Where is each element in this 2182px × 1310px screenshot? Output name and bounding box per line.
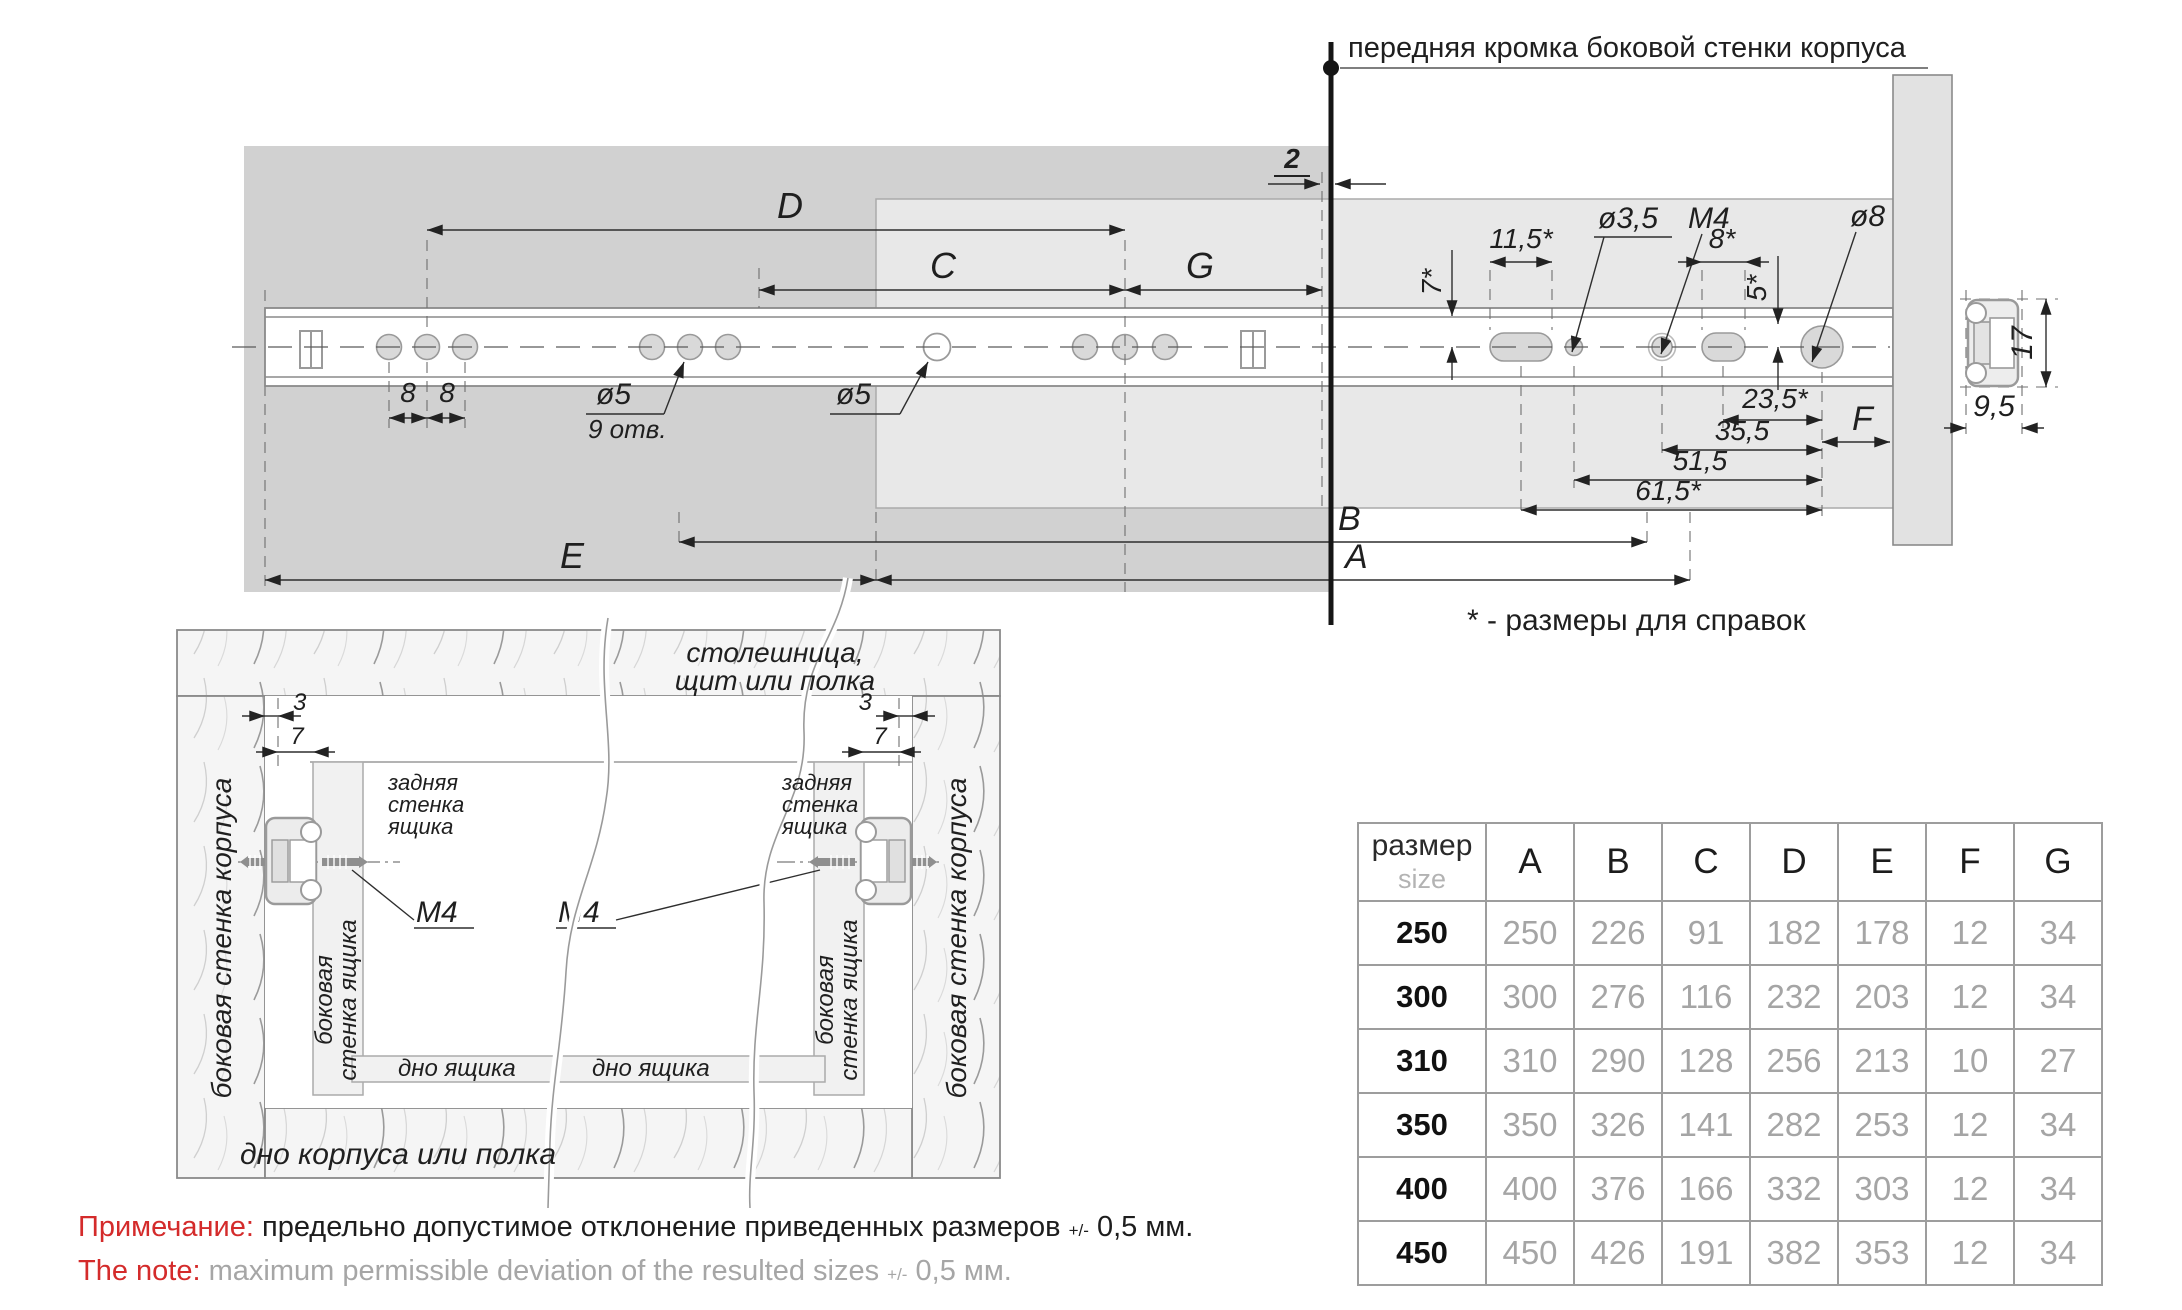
section-width-label: 9,5 <box>1973 390 2015 423</box>
table-header-c: C <box>1662 823 1750 901</box>
note-en-tolerance: +/- <box>887 1265 907 1284</box>
size-header-ru: размер <box>1360 829 1484 864</box>
dim-label-615: 61,5* <box>1635 475 1701 506</box>
table-cell: 213 <box>1838 1029 1926 1093</box>
note-ru-label: Примечание: <box>78 1211 254 1243</box>
drawer-bottom-label-left: дно ящика <box>398 1055 516 1082</box>
note-en-label: The note: <box>78 1255 201 1287</box>
size-table: размер size A B C D E F G 250 250 226 91… <box>1357 822 2103 1286</box>
table-header-d: D <box>1750 823 1838 901</box>
dim-7-left: 7 <box>290 723 305 750</box>
table-cell: 226 <box>1574 901 1662 965</box>
table-cell: 12 <box>1926 901 2014 965</box>
svg-text:стенка ящика: стенка ящика <box>836 919 863 1080</box>
section-height-label: 17 <box>2006 325 2039 360</box>
table-cell: 91 <box>1662 901 1750 965</box>
table-cell: 34 <box>2014 1221 2102 1285</box>
cross-section: 17 9,5 <box>1944 290 2058 442</box>
table-cell: 353 <box>1838 1221 1926 1285</box>
technical-drawing-page: E A B <box>0 0 2182 1305</box>
table-row: 350 350 326 141 282 253 12 34 <box>1358 1093 2102 1157</box>
note-ru-value: 0,5 мм. <box>1097 1211 1193 1243</box>
table-header-b: B <box>1574 823 1662 901</box>
table-cell: 332 <box>1750 1157 1838 1221</box>
table-row: 250 250 226 91 182 178 12 34 <box>1358 901 2102 965</box>
svg-text:ящика: ящика <box>781 814 847 839</box>
table-cell: 250 <box>1486 901 1574 965</box>
table-cell: 290 <box>1574 1029 1662 1093</box>
table-cell: 426 <box>1574 1221 1662 1285</box>
table-cell-size: 310 <box>1358 1029 1486 1093</box>
table-cell-size: 450 <box>1358 1221 1486 1285</box>
dim-label-e: E <box>560 535 585 576</box>
note-ru-text: предельно допустимое отклонение приведен… <box>262 1211 1061 1243</box>
dim-label-c: C <box>930 245 957 286</box>
table-row: 310 310 290 128 256 213 10 27 <box>1358 1029 2102 1093</box>
dim-label-5s: 5* <box>1741 274 1772 302</box>
table-cell: 12 <box>1926 1221 2014 1285</box>
dim-label-235: 23,5* <box>1741 383 1808 414</box>
dim-label-515: 51,5 <box>1673 445 1728 476</box>
svg-text:стенка ящика: стенка ящика <box>335 919 362 1080</box>
m4-label-left: M4 <box>416 896 458 929</box>
callout-holes-count: 9 отв. <box>588 414 667 444</box>
dim-label-a: A <box>1343 538 1368 576</box>
dim-label-d: D <box>777 185 803 226</box>
table-header-row: размер size A B C D E F G <box>1358 823 2102 901</box>
dim-label-g: G <box>1186 245 1214 286</box>
table-cell: 178 <box>1838 901 1926 965</box>
table-cell: 350 <box>1486 1093 1574 1157</box>
corpus-side-label-left: боковая стенка корпуса <box>206 778 237 1099</box>
table-cell: 34 <box>2014 1093 2102 1157</box>
rail-top-view: E A B <box>232 32 1952 637</box>
table-header-size: размер size <box>1358 823 1486 901</box>
drawer-rear-label-left: задняя стенка ящика <box>387 770 464 839</box>
table-header-a: A <box>1486 823 1574 901</box>
table-cell: 166 <box>1662 1157 1750 1221</box>
dim-label-f: F <box>1852 400 1875 438</box>
table-cell: 12 <box>1926 965 2014 1029</box>
table-cell: 253 <box>1838 1093 1926 1157</box>
table-row: 450 450 426 191 382 353 12 34 <box>1358 1221 2102 1285</box>
dim-label-gap2: 2 <box>1283 143 1300 174</box>
table-cell: 34 <box>2014 1157 2102 1221</box>
table-cell: 191 <box>1662 1221 1750 1285</box>
table-cell: 203 <box>1838 965 1926 1029</box>
mounting-diagram: M4 <box>177 578 1000 1208</box>
table-cell: 276 <box>1574 965 1662 1029</box>
table-cell: 12 <box>1926 1157 2014 1221</box>
svg-text:боковая: боковая <box>812 955 839 1045</box>
table-cell: 256 <box>1750 1029 1838 1093</box>
table-header-f: F <box>1926 823 2014 901</box>
note-en-value: 0,5 мм. <box>916 1255 1012 1287</box>
table-header-g: G <box>2014 823 2102 901</box>
table-cell: 300 <box>1486 965 1574 1029</box>
table-cell: 128 <box>1662 1029 1750 1093</box>
drawer-bottom-label-right: дно ящика <box>592 1055 710 1082</box>
table-cell: 116 <box>1662 965 1750 1029</box>
table-cell: 232 <box>1750 965 1838 1029</box>
callout-d35: ø3,5 <box>1598 202 1658 235</box>
notes-block: Примечание: предельно допустимое отклоне… <box>78 1207 978 1295</box>
table-row: 300 300 276 116 232 203 12 34 <box>1358 965 2102 1029</box>
note-ru: Примечание: предельно допустимое отклоне… <box>78 1207 978 1251</box>
table-cell: 376 <box>1574 1157 1662 1221</box>
table-cell: 303 <box>1838 1157 1926 1221</box>
svg-text:ящика: ящика <box>387 814 453 839</box>
dim-label-pitch8b: 8 <box>439 377 455 408</box>
top-panel <box>177 630 1000 696</box>
size-header-en: size <box>1360 864 1484 895</box>
table-cell-size: 350 <box>1358 1093 1486 1157</box>
callout-d8: ø8 <box>1850 200 1885 233</box>
table-cell-size: 400 <box>1358 1157 1486 1221</box>
corpus-bottom-label: дно корпуса или полка <box>240 1138 556 1171</box>
corpus-side-label-right: боковая стенка корпуса <box>941 778 972 1099</box>
top-panel-label: столешница, <box>686 637 863 668</box>
table-cell: 12 <box>1926 1093 2014 1157</box>
callout-d5: ø5 <box>596 378 631 411</box>
table-cell: 400 <box>1486 1157 1574 1221</box>
table-cell: 10 <box>1926 1029 2014 1093</box>
dim-label-pitch8a: 8 <box>400 377 416 408</box>
reference-note: * - размеры для справок <box>1467 604 1807 637</box>
note-en-text: maximum permissible deviation of the res… <box>209 1255 880 1287</box>
rail-stopper <box>300 331 322 368</box>
rail-stopper <box>1241 331 1265 368</box>
table-row: 400 400 376 166 332 303 12 34 <box>1358 1157 2102 1221</box>
table-header-e: E <box>1838 823 1926 901</box>
table-cell: 382 <box>1750 1221 1838 1285</box>
table-cell: 450 <box>1486 1221 1574 1285</box>
callout-d5-mid: ø5 <box>836 378 871 411</box>
svg-text:боковая: боковая <box>311 955 338 1045</box>
dim-label-b: B <box>1338 500 1361 538</box>
table-cell: 310 <box>1486 1029 1574 1093</box>
front-edge-label: передняя кромка боковой стенки корпуса <box>1348 32 1907 64</box>
table-cell: 34 <box>2014 901 2102 965</box>
table-cell-size: 250 <box>1358 901 1486 965</box>
drawer-rear-label-right: задняя стенка ящика <box>781 770 858 839</box>
dim-3-left: 3 <box>293 689 307 716</box>
table-cell-size: 300 <box>1358 965 1486 1029</box>
dim-label-8s: 8* <box>1709 223 1737 254</box>
table-cell: 326 <box>1574 1093 1662 1157</box>
dim-label-7s: 7* <box>1416 268 1447 296</box>
table-cell: 182 <box>1750 901 1838 965</box>
table-cell: 27 <box>2014 1029 2102 1093</box>
note-ru-tolerance: +/- <box>1069 1221 1089 1240</box>
dim-7-right: 7 <box>873 723 888 750</box>
dim-label-115: 11,5* <box>1489 223 1553 254</box>
top-panel-label: щит или полка <box>675 665 875 696</box>
dim-label-355: 35,5 <box>1715 415 1770 446</box>
table-cell: 34 <box>2014 965 2102 1029</box>
note-en: The note: maximum permissible deviation … <box>78 1251 978 1295</box>
table-cell: 141 <box>1662 1093 1750 1157</box>
front-panel-bar <box>1893 75 1952 545</box>
front-edge-point <box>1323 60 1339 76</box>
table-cell: 282 <box>1750 1093 1838 1157</box>
